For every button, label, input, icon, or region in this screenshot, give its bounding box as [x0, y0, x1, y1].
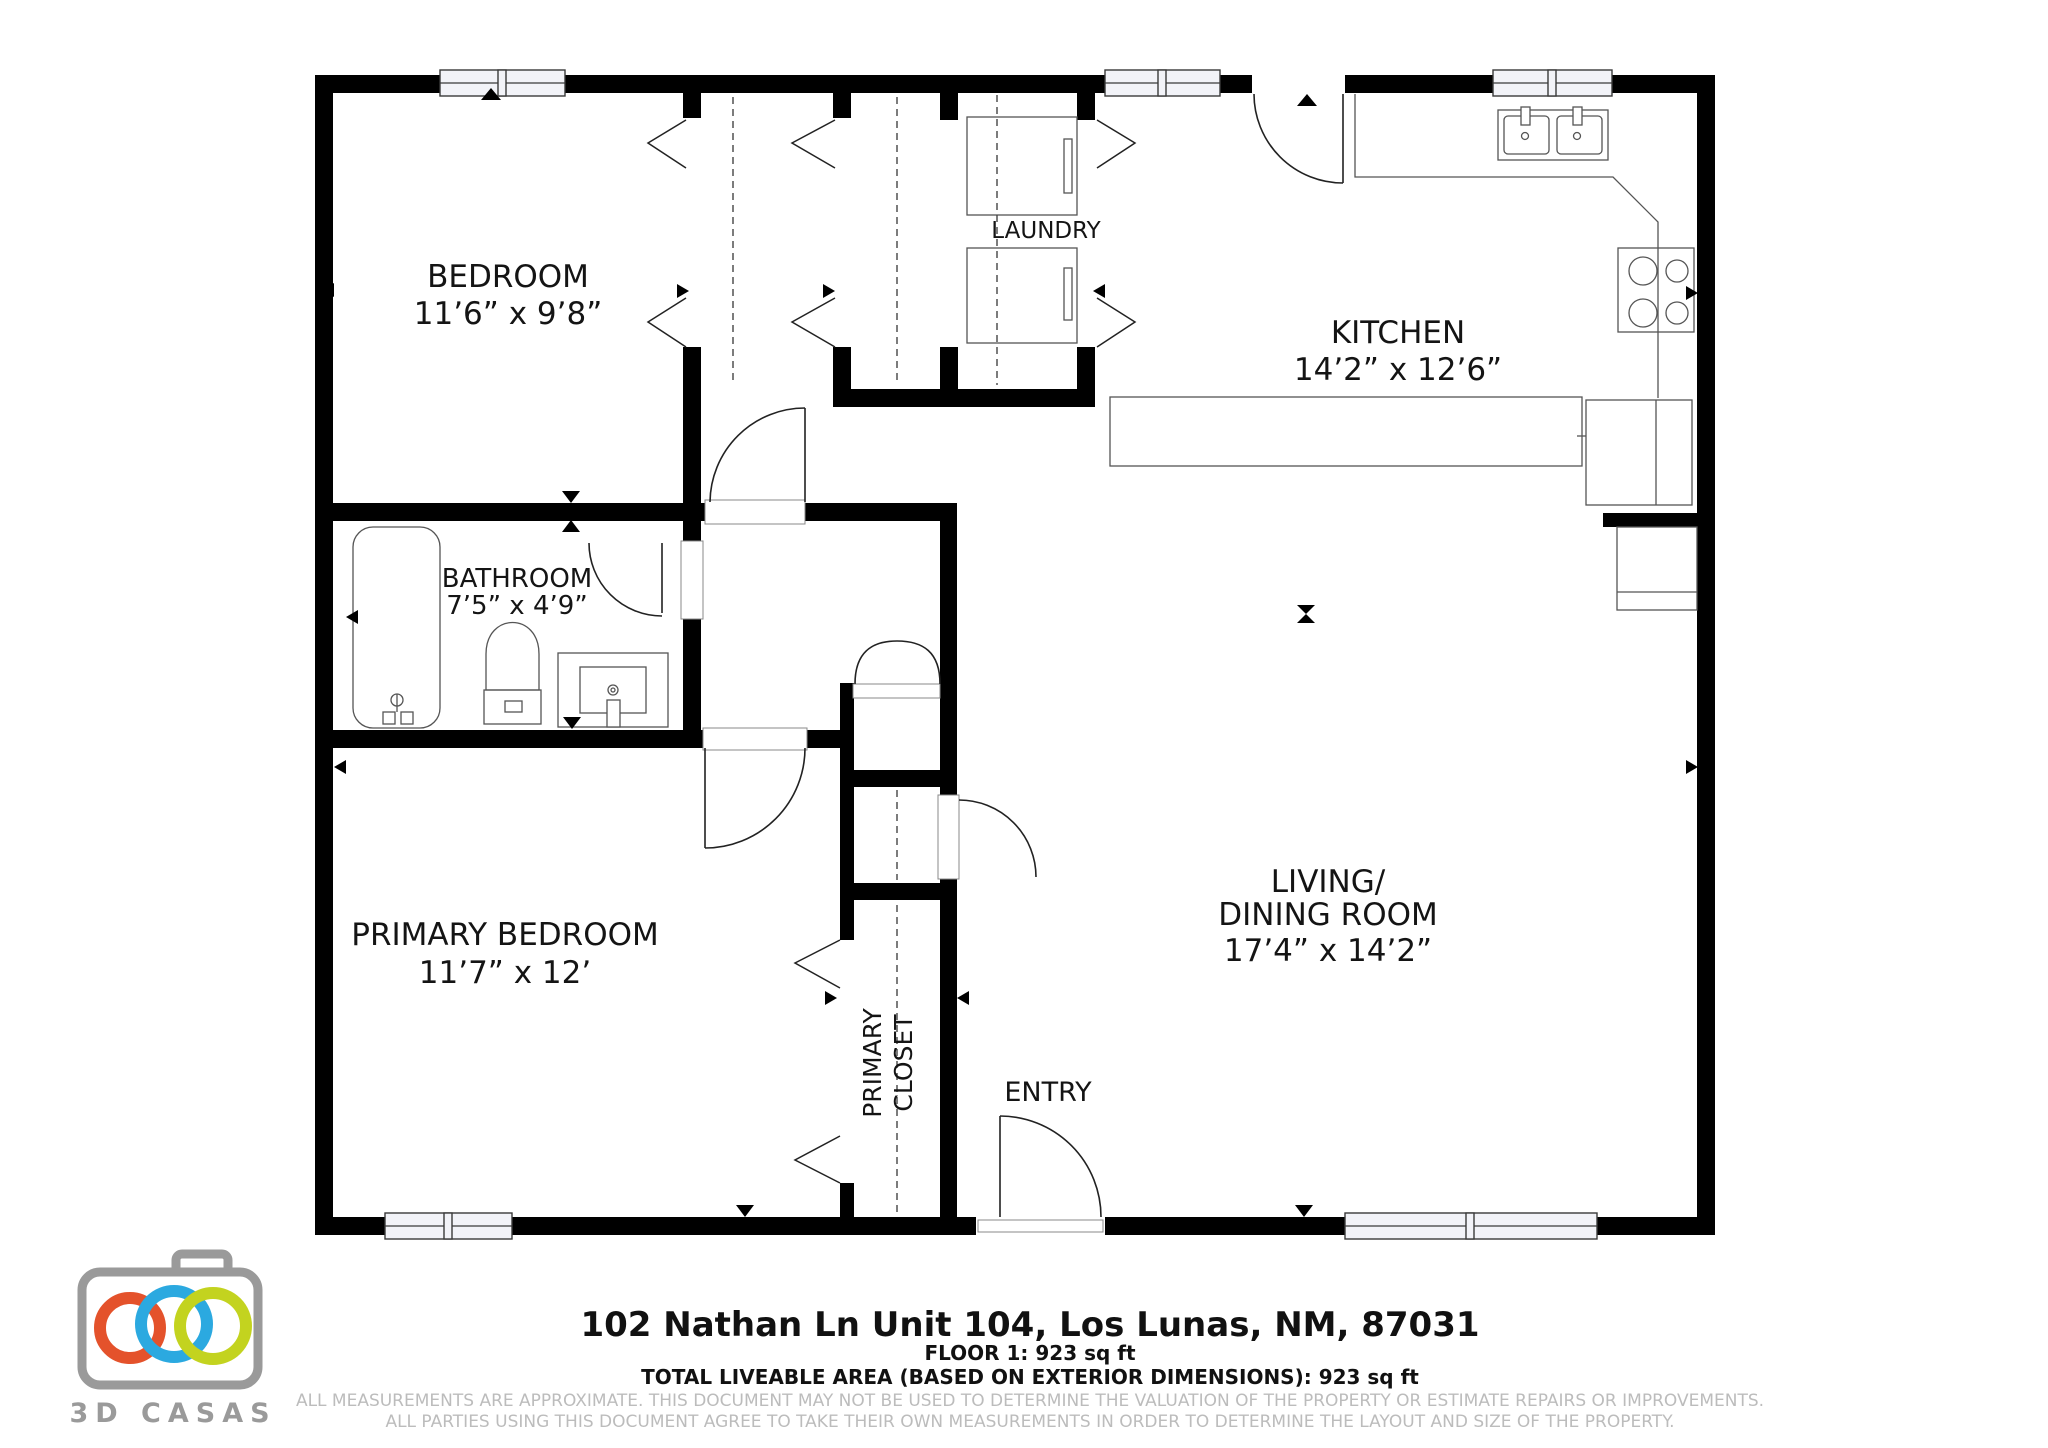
- toilet: [484, 623, 541, 725]
- bathtub: [353, 527, 440, 728]
- primary-closet-label-2: CLOSET: [889, 1014, 918, 1112]
- marker-down-living-wall: [1295, 1205, 1313, 1217]
- marker-left-laundry: [1093, 284, 1105, 298]
- marker-up-kitchen-door: [1297, 94, 1317, 106]
- stove: [1618, 248, 1694, 332]
- marker-down-entry-wall: [736, 1205, 754, 1217]
- kitchen-exterior-door: [1254, 94, 1343, 183]
- window-primary-bedroom: [385, 1213, 512, 1239]
- window-bedroom: [440, 70, 565, 96]
- primary-bedroom-doorway: [703, 728, 807, 750]
- marker-right-nook: [677, 284, 689, 298]
- bathroom-dims: 7’5” x 4’9”: [446, 591, 588, 621]
- kitchen-label: KITCHEN: [1331, 315, 1465, 351]
- marker-right-living: [1686, 760, 1698, 774]
- marker-right-closet: [823, 284, 835, 298]
- marker-up-hall-wall: [562, 520, 580, 532]
- marker-left-primary-bedroom: [334, 760, 346, 774]
- disclaimer-line-2: ALL PARTIES USING THIS DOCUMENT AGREE TO…: [385, 1412, 1674, 1432]
- primary-closet-label-1: PRIMARY: [858, 1008, 887, 1118]
- address-line: 102 Nathan Ln Unit 104, Los Lunas, NM, 8…: [580, 1305, 1479, 1345]
- logo-brand-text: 3D CASAS: [69, 1398, 276, 1429]
- entry-threshold: [978, 1220, 1103, 1232]
- living-label-1: LIVING/: [1271, 864, 1386, 900]
- primary-bedroom-door: [705, 748, 805, 848]
- windows: [385, 70, 1612, 1239]
- marker-hourglass-top: [1297, 605, 1315, 614]
- window-kitchen: [1493, 70, 1612, 96]
- primary-bedroom-dims: 11’7” x 12’: [419, 955, 591, 991]
- primary-bedroom-label: PRIMARY BEDROOM: [351, 917, 659, 953]
- bifold-closet-door: [853, 641, 940, 698]
- room-labels: BEDROOM 11’6” x 9’8” LAUNDRY KITCHEN 14’…: [351, 218, 1502, 1118]
- entry-door: [1000, 1116, 1101, 1217]
- total-area-line: TOTAL LIVEABLE AREA (BASED ON EXTERIOR D…: [641, 1365, 1419, 1389]
- bathroom-fixtures: [353, 527, 668, 728]
- window-laundry-hall: [1105, 70, 1220, 96]
- refrigerator: [1577, 400, 1692, 505]
- hall-closet-door: [959, 800, 1036, 877]
- bathroom-vanity: [558, 653, 668, 727]
- marker-down-hall-wall: [562, 491, 580, 503]
- door-swings: [589, 94, 1343, 1217]
- disclaimer-line-1: ALL MEASUREMENTS ARE APPROXIMATE. THIS D…: [296, 1391, 1764, 1411]
- laundry-label: LAUNDRY: [991, 218, 1101, 244]
- kitchen-sink: [1498, 107, 1608, 160]
- peninsula-cabinet: [1617, 527, 1697, 610]
- dryer: [967, 248, 1077, 343]
- marker-left-primary-closet: [957, 991, 969, 1005]
- kitchen-dims: 14’2” x 12’6”: [1294, 352, 1502, 388]
- living-label-2: DINING ROOM: [1218, 897, 1438, 933]
- kitchen-exterior-door-opening: [1252, 73, 1345, 95]
- bathroom-door: [589, 543, 662, 616]
- floor-area-line: FLOOR 1: 923 sq ft: [924, 1341, 1136, 1365]
- marker-left-bathroom: [346, 610, 358, 624]
- kitchen-island: [1110, 397, 1582, 466]
- window-living-room: [1345, 1213, 1597, 1239]
- footer: 102 Nathan Ln Unit 104, Los Lunas, NM, 8…: [296, 1305, 1764, 1432]
- bedroom-doorway: [705, 500, 805, 524]
- hall-closet-doorway: [938, 795, 959, 879]
- entry-label: ENTRY: [1004, 1077, 1092, 1108]
- bedroom-dims: 11’6” x 9’8”: [414, 296, 603, 332]
- bedroom-label: BEDROOM: [427, 259, 589, 295]
- living-dims: 17’4” x 14’2”: [1224, 933, 1432, 969]
- marker-right-primary-closet: [825, 991, 837, 1005]
- bathroom-doorway: [681, 541, 703, 619]
- washer: [967, 117, 1077, 215]
- marker-right-stove: [1686, 286, 1698, 300]
- marker-hourglass-bottom: [1297, 614, 1315, 623]
- logo-3d-casas: 3D CASAS: [69, 1254, 276, 1429]
- floor-plan-canvas: BEDROOM 11’6” x 9’8” LAUNDRY KITCHEN 14’…: [0, 0, 2048, 1448]
- bathroom-label: BATHROOM: [442, 564, 592, 594]
- bedroom-door: [710, 408, 805, 502]
